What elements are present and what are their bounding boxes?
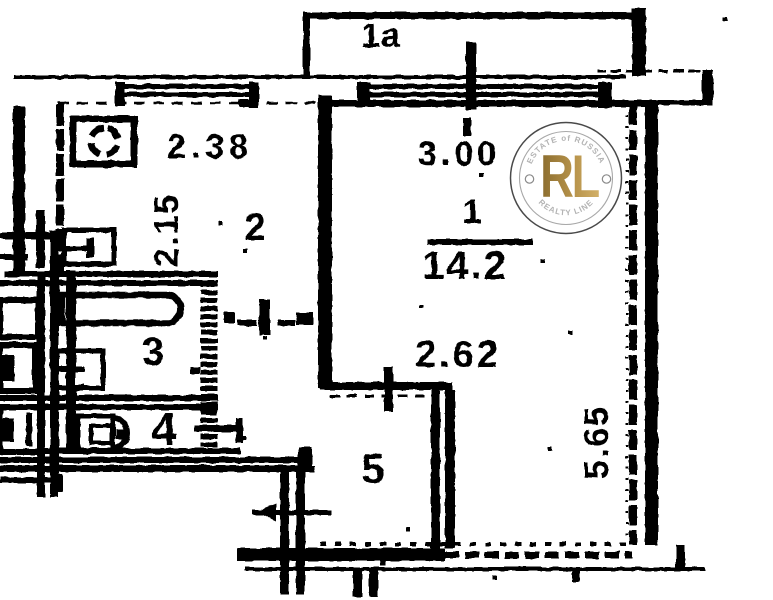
svg-text:2.62: 2.62 <box>415 334 501 376</box>
svg-text:RL: RL <box>540 143 599 210</box>
svg-text:5: 5 <box>361 445 384 492</box>
svg-text:4: 4 <box>151 403 177 455</box>
svg-text:2.38: 2.38 <box>167 128 253 166</box>
svg-text:1: 1 <box>463 193 482 231</box>
svg-text:1a: 1a <box>361 17 401 55</box>
svg-text:14.2: 14.2 <box>422 244 508 288</box>
svg-text:2.15: 2.15 <box>148 193 186 267</box>
svg-text:3: 3 <box>142 330 164 374</box>
svg-text:3.00: 3.00 <box>418 135 500 173</box>
svg-text:2: 2 <box>244 207 265 249</box>
svg-text:5.65: 5.65 <box>578 405 616 479</box>
